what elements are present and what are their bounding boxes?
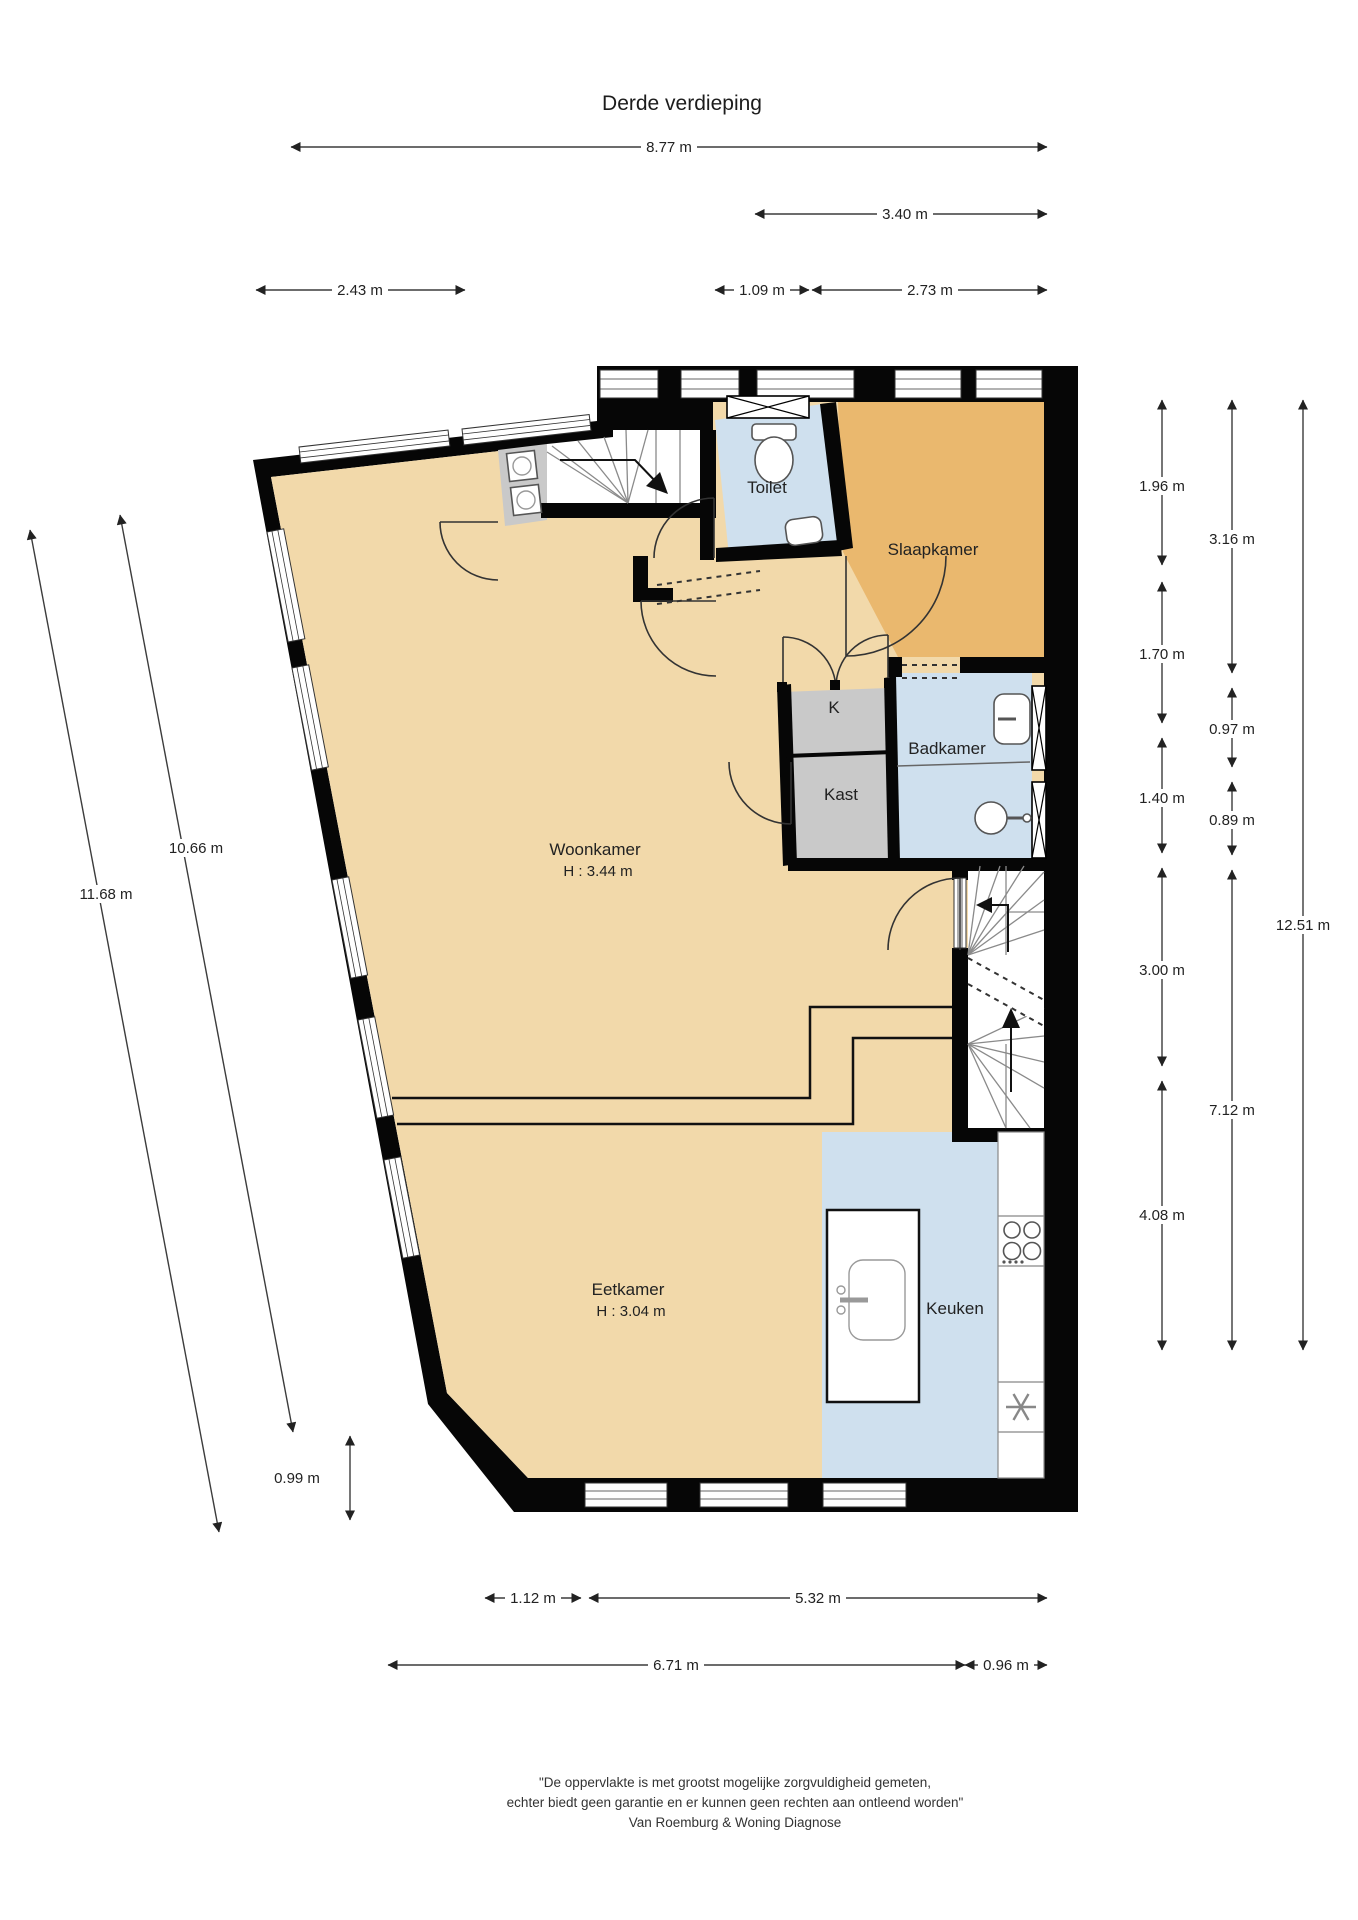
page-title: Derde verdieping — [602, 92, 762, 115]
dim-8-77: 8.77 m — [646, 139, 692, 156]
dim-0-99: 0.99 m — [274, 1470, 320, 1487]
label-slaapkamer: Slaapkamer — [888, 540, 979, 559]
dim-3-00: 3.00 m — [1139, 962, 1185, 979]
dim-3-16: 3.16 m — [1209, 531, 1255, 548]
label-kast: Kast — [824, 785, 858, 804]
dim-1-96: 1.96 m — [1139, 478, 1185, 495]
label-k: K — [828, 698, 840, 717]
footer-line-2: echter biedt geen garantie en er kunnen … — [507, 1795, 964, 1810]
dim-10-66: 10.66 m — [169, 840, 223, 857]
dim-1-70: 1.70 m — [1139, 646, 1185, 663]
dim-0-89: 0.89 m — [1209, 812, 1255, 829]
floorplan-page: Derde verdieping — [0, 0, 1358, 1920]
dim-4-08: 4.08 m — [1139, 1207, 1185, 1224]
dimensions-right: 1.96 m 1.70 m 1.40 m 3.00 m 4.08 m 3.16 … — [1134, 400, 1335, 1350]
label-toilet: Toilet — [747, 478, 787, 497]
dim-1-40: 1.40 m — [1139, 790, 1185, 807]
dim-1-12: 1.12 m — [510, 1590, 556, 1607]
kast-floor — [788, 752, 897, 862]
label-badkamer: Badkamer — [908, 739, 986, 758]
dim-5-32: 5.32 m — [795, 1590, 841, 1607]
label-eetkamer-height: H : 3.04 m — [596, 1303, 665, 1320]
dim-3-40: 3.40 m — [882, 206, 928, 223]
dim-0-96: 0.96 m — [983, 1657, 1029, 1674]
footer-line-3: Van Roemburg & Woning Diagnose — [629, 1815, 842, 1830]
dim-7-12: 7.12 m — [1209, 1102, 1255, 1119]
label-woonkamer: Woonkamer — [549, 840, 641, 859]
dim-0-97: 0.97 m — [1209, 721, 1255, 738]
dim-12-51: 12.51 m — [1276, 917, 1330, 934]
floor-plan-svg: Derde verdieping — [0, 0, 1358, 1920]
dim-2-73: 2.73 m — [907, 282, 953, 299]
dimensions-top: 8.77 m 3.40 m 2.43 m 1.09 m 2.73 m — [256, 138, 1047, 299]
label-eetkamer: Eetkamer — [592, 1280, 665, 1299]
footer-disclaimer: "De oppervlakte is met grootst mogelijke… — [507, 1775, 964, 1830]
label-keuken: Keuken — [926, 1299, 984, 1318]
dimensions-bottom: 1.12 m 5.32 m 6.71 m 0.96 m — [388, 1589, 1047, 1674]
dim-2-43: 2.43 m — [337, 282, 383, 299]
dim-6-71: 6.71 m — [653, 1657, 699, 1674]
dim-11-68: 11.68 m — [79, 886, 132, 903]
footer-line-1: "De oppervlakte is met grootst mogelijke… — [539, 1775, 931, 1790]
label-woonkamer-height: H : 3.44 m — [563, 863, 632, 880]
dim-1-09: 1.09 m — [739, 282, 785, 299]
